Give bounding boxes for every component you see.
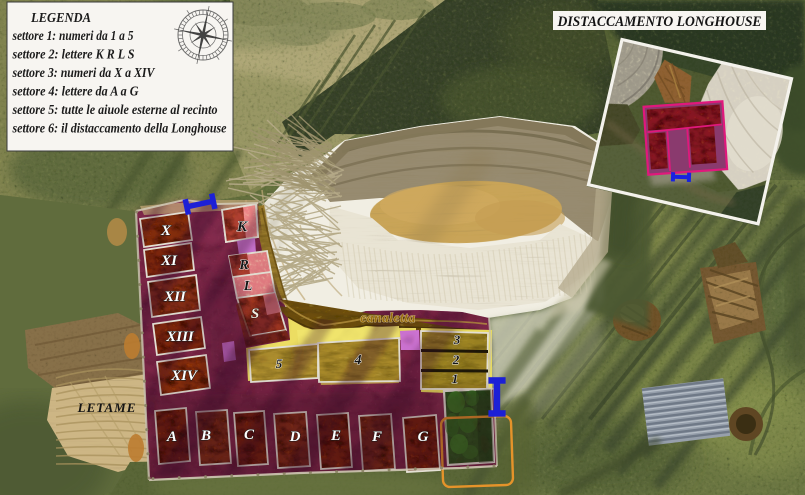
- svg-text:settore 2: lettere K R L S: settore 2: lettere K R L S: [12, 47, 135, 62]
- svg-text:G: G: [418, 429, 429, 445]
- svg-text:settore 5: tutte le aiuole est: settore 5: tutte le aiuole esterne al re…: [12, 102, 218, 117]
- svg-text:settore 4: lettere da A a G: settore 4: lettere da A a G: [12, 84, 139, 99]
- svg-text:5: 5: [276, 356, 283, 371]
- svg-text:LETAME: LETAME: [77, 400, 137, 415]
- svg-text:X: X: [160, 223, 172, 239]
- svg-text:XIV: XIV: [170, 368, 199, 384]
- svg-text:settore 1: numeri da 1 a 5: settore 1: numeri da 1 a 5: [12, 28, 134, 43]
- svg-text:settore 6: il distaccamento de: settore 6: il distaccamento della Longho…: [12, 121, 227, 136]
- svg-text:XII: XII: [163, 289, 187, 305]
- svg-text:2: 2: [452, 352, 460, 367]
- svg-text:DISTACCAMENTO LONGHOUSE: DISTACCAMENTO LONGHOUSE: [557, 14, 762, 30]
- svg-text:XI: XI: [160, 253, 178, 269]
- svg-text:canaletta: canaletta: [360, 310, 416, 325]
- svg-text:1: 1: [452, 371, 459, 386]
- svg-text:settore 3: numeri da X a XIV: settore 3: numeri da X a XIV: [12, 65, 156, 80]
- svg-text:S: S: [251, 306, 259, 322]
- svg-text:XIII: XIII: [165, 329, 195, 345]
- svg-text:A: A: [166, 429, 177, 445]
- svg-text:R: R: [238, 258, 248, 273]
- svg-text:B: B: [200, 428, 211, 444]
- svg-text:K: K: [236, 219, 248, 235]
- svg-text:F: F: [371, 429, 382, 445]
- svg-text:LEGENDA: LEGENDA: [30, 10, 91, 25]
- svg-text:C: C: [244, 427, 255, 443]
- svg-text:L: L: [243, 279, 253, 294]
- svg-text:E: E: [330, 428, 341, 444]
- svg-text:D: D: [289, 429, 301, 445]
- svg-text:3: 3: [453, 332, 461, 347]
- svg-text:4: 4: [354, 353, 362, 368]
